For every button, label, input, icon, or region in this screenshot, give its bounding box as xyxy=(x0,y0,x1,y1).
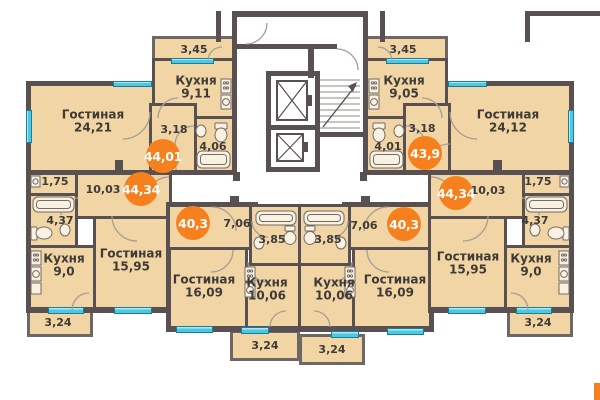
label-living-mid-right: Гостиная15,95 xyxy=(437,251,499,278)
stairs-icon xyxy=(320,80,360,128)
window xyxy=(171,58,214,64)
vestibule-wall xyxy=(237,44,337,49)
entry-jamb-bottom-right xyxy=(361,196,370,205)
label-closet-mid-left: 1,75 xyxy=(41,176,68,188)
label-kitchen-top-right: Кухня9,05 xyxy=(383,75,424,102)
label-kitchen-mid-left: Кухня9,0 xyxy=(43,253,84,280)
label-hall-mid-right: 10,03 xyxy=(471,185,506,197)
window xyxy=(386,58,429,64)
label-bath-top-left: 4,06 xyxy=(199,141,226,153)
label-kitchen-bottom-right: Кухня10,06 xyxy=(313,277,354,304)
elevator-shaft-divider xyxy=(266,125,320,130)
roof-stub-left xyxy=(216,11,221,42)
window xyxy=(448,307,486,314)
badge-total-bottom-left[interactable]: 40,3 xyxy=(176,206,210,240)
label-living-top-left: Гостиная24,21 xyxy=(62,109,124,136)
label-balcony-top-left: 3,45 xyxy=(180,44,207,56)
elevator-door-stub-1 xyxy=(306,95,312,106)
label-hall-top-right: 3,18 xyxy=(408,123,435,135)
label-balcony-top-right: 3,45 xyxy=(389,44,416,56)
label-hall-bottom-left: 7,06 xyxy=(223,218,250,230)
label-living-mid-left: Гостиная15,95 xyxy=(100,248,162,275)
label-kitchen-top-left: Кухня9,11 xyxy=(175,75,216,102)
core-top-wall xyxy=(232,11,368,17)
badge-total-top-right[interactable]: 43,9 xyxy=(408,136,442,170)
label-kitchen-bottom-left: Кухня10,06 xyxy=(246,277,287,304)
badge-total-mid-left[interactable]: 44,34 xyxy=(124,172,158,206)
label-living-top-right: Гостиная24,12 xyxy=(477,109,539,136)
adjacent-section-wall-h xyxy=(525,11,600,16)
window xyxy=(114,307,152,314)
badge-total-top-left[interactable]: 44,01 xyxy=(146,139,180,173)
window xyxy=(176,326,213,333)
label-hall-mid-left: 10,03 xyxy=(86,184,121,196)
elevator-door-stub-2 xyxy=(302,142,308,152)
window xyxy=(448,81,487,87)
corner-orange-bar xyxy=(594,383,600,400)
window xyxy=(331,331,359,338)
window xyxy=(516,307,552,314)
label-kitchen-mid-right: Кухня9,0 xyxy=(510,253,551,280)
core-right-wall xyxy=(363,11,368,173)
label-living-bottom-left: Гостиная16,09 xyxy=(173,274,235,301)
label-closet-mid-right: 1,75 xyxy=(524,176,551,188)
label-living-bottom-right: Гостиная16,09 xyxy=(364,274,426,301)
badge-total-mid-right[interactable]: 44,34 xyxy=(439,176,473,210)
label-balcony-bottom-right: 3,24 xyxy=(318,344,345,356)
label-bath-mid-right: 4,37 xyxy=(521,215,548,227)
corridor-jamb-right xyxy=(360,172,367,181)
label-hall-top-left: 3,18 xyxy=(160,124,187,136)
core-left-wall xyxy=(232,11,237,173)
window xyxy=(387,328,424,335)
adjacent-section-wall-v xyxy=(525,11,530,42)
window xyxy=(113,81,152,87)
wall-pier-right xyxy=(493,160,502,171)
window xyxy=(26,110,32,143)
window xyxy=(241,327,269,334)
label-hall-bottom-right: 7,06 xyxy=(350,220,377,232)
window xyxy=(568,110,574,143)
floor-plan: Гостиная24,21 Кухня9,11 3,45 3,18 4,06 1… xyxy=(0,0,600,400)
corridor-jamb-left xyxy=(233,172,240,181)
label-balcony-mid-right: 3,24 xyxy=(524,317,551,329)
wall-pier-left xyxy=(115,160,123,171)
label-balcony-bottom-left: 3,24 xyxy=(251,340,278,352)
label-bath-bottom-left: 3,85 xyxy=(258,234,285,246)
label-bath-mid-left: 4,37 xyxy=(46,215,73,227)
label-balcony-mid-left: 3,24 xyxy=(44,317,71,329)
label-bath-top-right: 4,01 xyxy=(374,141,401,153)
window xyxy=(48,307,84,314)
entry-jamb-bottom-left xyxy=(230,196,239,205)
stairs-bottom-wall xyxy=(318,132,368,137)
label-bath-bottom-right: 3,85 xyxy=(314,234,341,246)
badge-total-bottom-right[interactable]: 40,3 xyxy=(387,207,421,241)
roof-stub-right xyxy=(380,11,385,42)
elevator-shaft xyxy=(266,71,320,172)
